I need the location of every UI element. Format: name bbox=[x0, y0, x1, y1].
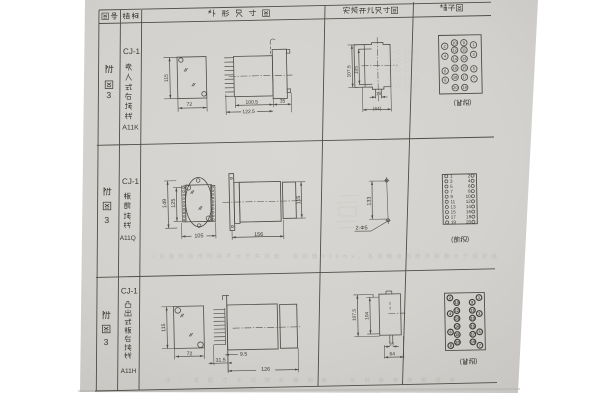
svg-text:3: 3 bbox=[104, 337, 109, 347]
svg-text:6: 6 bbox=[449, 330, 451, 334]
svg-text:115: 115 bbox=[164, 74, 170, 82]
svg-text:A11Q: A11Q bbox=[120, 235, 136, 242]
svg-text:A11H: A11H bbox=[121, 368, 137, 375]
svg-text:20: 20 bbox=[466, 219, 472, 224]
svg-text:16: 16 bbox=[389, 341, 395, 346]
svg-text:2: 2 bbox=[449, 296, 451, 300]
svg-text:12: 12 bbox=[452, 47, 456, 52]
svg-text:12: 12 bbox=[455, 309, 459, 313]
svg-text:16: 16 bbox=[453, 65, 457, 70]
svg-text:125: 125 bbox=[171, 199, 177, 208]
svg-text:2: 2 bbox=[444, 44, 446, 49]
svg-text:105: 105 bbox=[194, 233, 203, 239]
svg-text:17: 17 bbox=[471, 333, 475, 337]
svg-text:8: 8 bbox=[444, 77, 446, 82]
svg-text:18: 18 bbox=[453, 75, 457, 80]
svg-text:(: ( bbox=[454, 100, 457, 107]
svg-text:15: 15 bbox=[470, 324, 474, 328]
svg-text:19: 19 bbox=[471, 340, 475, 344]
svg-text:): ) bbox=[467, 236, 469, 243]
svg-text:): ) bbox=[469, 99, 471, 106]
svg-text:7: 7 bbox=[473, 76, 475, 81]
svg-text:(: ( bbox=[460, 358, 463, 365]
svg-text:6: 6 bbox=[444, 68, 446, 73]
svg-text:注：本图寸子均按实物测绘，仅供参考使用说明: 注：本图寸子均按实物测绘，仅供参考使用说明 bbox=[165, 377, 455, 384]
svg-text:1: 1 bbox=[472, 42, 474, 47]
svg-text:1: 1 bbox=[478, 296, 480, 300]
svg-text:13: 13 bbox=[470, 316, 474, 320]
svg-text:10: 10 bbox=[455, 301, 459, 305]
svg-text:9: 9 bbox=[471, 301, 473, 305]
svg-text:19: 19 bbox=[462, 85, 466, 90]
svg-text:20: 20 bbox=[455, 340, 459, 344]
svg-text:107.5: 107.5 bbox=[352, 309, 358, 321]
svg-text:CJ-1: CJ-1 bbox=[121, 287, 138, 296]
svg-text:126: 126 bbox=[261, 367, 270, 373]
svg-text:3: 3 bbox=[104, 215, 109, 225]
svg-text:115: 115 bbox=[161, 323, 167, 332]
svg-text:17: 17 bbox=[462, 74, 466, 79]
svg-text:122.5: 122.5 bbox=[242, 109, 255, 115]
svg-text:11: 11 bbox=[470, 309, 474, 313]
svg-text:72: 72 bbox=[186, 102, 192, 108]
svg-text:133: 133 bbox=[367, 197, 373, 206]
svg-text:64: 64 bbox=[389, 351, 395, 357]
svg-text:3: 3 bbox=[106, 90, 111, 100]
svg-text:11: 11 bbox=[462, 47, 466, 52]
svg-text:100.5: 100.5 bbox=[245, 100, 258, 106]
svg-text:13: 13 bbox=[462, 56, 466, 61]
svg-text:105: 105 bbox=[354, 66, 360, 74]
svg-text:149: 149 bbox=[162, 199, 168, 208]
svg-text:16: 16 bbox=[455, 325, 459, 329]
svg-text:5: 5 bbox=[479, 330, 481, 334]
svg-text:2-Φ5: 2-Φ5 bbox=[356, 225, 368, 231]
svg-text:): ) bbox=[475, 358, 477, 365]
svg-text:18: 18 bbox=[455, 333, 459, 337]
svg-text:9: 9 bbox=[463, 40, 465, 45]
svg-text:7: 7 bbox=[479, 344, 481, 348]
svg-text:A11K: A11K bbox=[122, 125, 139, 132]
svg-text:19: 19 bbox=[451, 220, 457, 225]
svg-text:|64|: |64| bbox=[373, 106, 381, 112]
svg-text:115: 115 bbox=[296, 195, 302, 204]
svg-text:104: 104 bbox=[364, 311, 370, 319]
svg-text:15: 15 bbox=[462, 65, 466, 70]
svg-text:16: 16 bbox=[376, 91, 382, 96]
svg-text:CJ-1: CJ-1 bbox=[123, 47, 140, 56]
svg-text:9.5: 9.5 bbox=[240, 352, 247, 358]
svg-text:3: 3 bbox=[478, 312, 480, 316]
svg-text:156: 156 bbox=[254, 232, 263, 238]
svg-text:8: 8 bbox=[450, 344, 452, 348]
svg-text:CJ-1: CJ-1 bbox=[122, 177, 139, 186]
svg-text:3: 3 bbox=[472, 52, 474, 57]
svg-text:72: 72 bbox=[187, 351, 193, 357]
svg-text:□设备的动作时间不大于实测值：返回值=10ms，各组触点的断: □设备的动作时间不大于实测值：返回值=10ms，各组触点的断开容量大于规定值 bbox=[152, 253, 497, 260]
svg-text:4: 4 bbox=[444, 54, 447, 59]
svg-text:5: 5 bbox=[473, 66, 475, 71]
svg-text:107.5: 107.5 bbox=[346, 65, 352, 77]
svg-text:35: 35 bbox=[280, 99, 286, 105]
svg-text:31.5: 31.5 bbox=[216, 358, 226, 364]
